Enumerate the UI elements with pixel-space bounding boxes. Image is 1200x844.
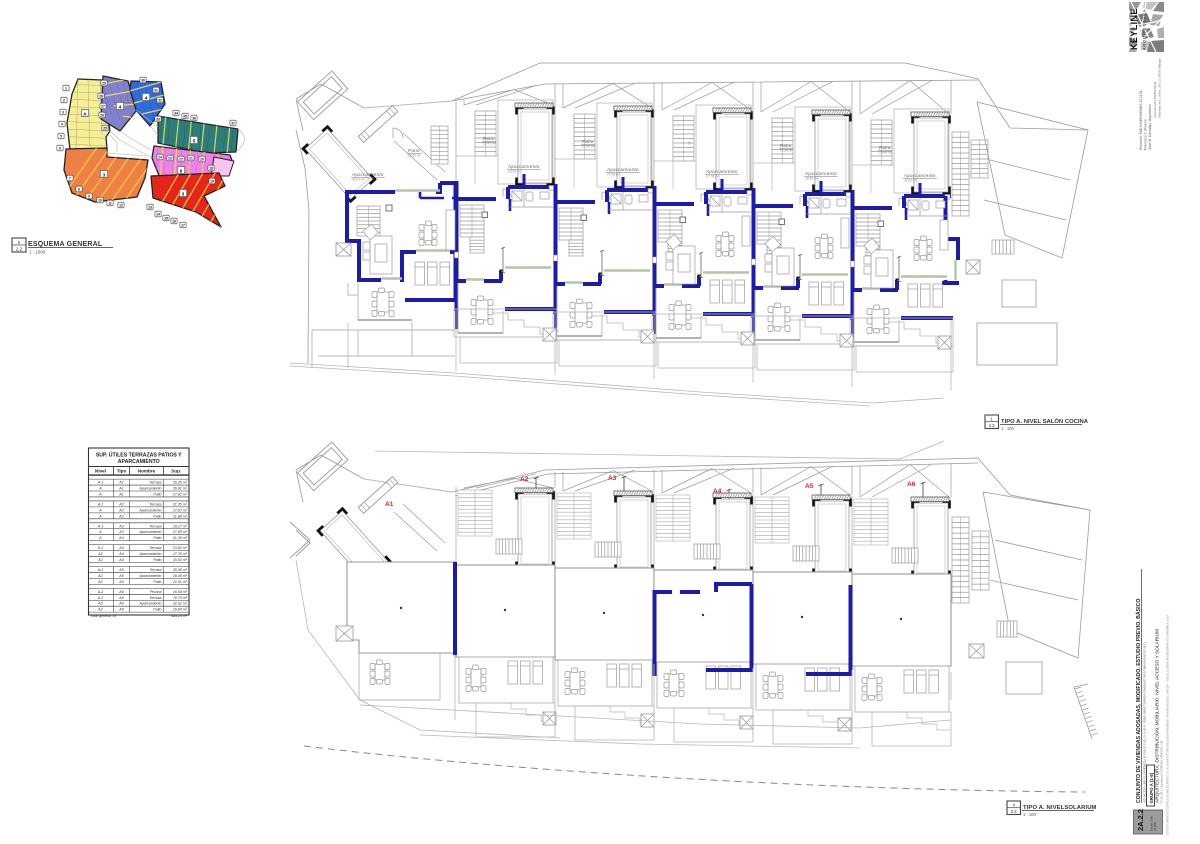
svg-text:18.48 m²: 18.48 m²	[805, 177, 819, 181]
svg-text:Sup.: Sup.	[171, 469, 181, 474]
svg-text:A4: A4	[118, 558, 123, 562]
svg-text:KEYLINE: KEYLINE	[1129, 8, 1139, 50]
svg-text:22: 22	[179, 158, 183, 162]
svg-text:17: 17	[181, 224, 185, 228]
svg-text:A6: A6	[118, 608, 123, 612]
svg-text:ESTE DOCUMENTO ES COPIA DEL PL: ESTE DOCUMENTO ES COPIA DEL PLANO DE PRO…	[1167, 614, 1170, 835]
svg-text:Patio: Patio	[879, 145, 891, 150]
svg-text:Patio: Patio	[153, 536, 161, 540]
svg-text:23: 23	[168, 157, 172, 161]
svg-text:Aparcamiento: Aparcamiento	[138, 574, 161, 578]
svg-text:30: 30	[141, 79, 145, 83]
svg-text:A5: A5	[118, 568, 123, 572]
svg-text:A1 (A3): A1 (A3)	[1153, 822, 1157, 831]
svg-text:22,01 m²: 22,01 m²	[172, 580, 188, 584]
svg-text:5: 5	[60, 135, 62, 139]
svg-text:Piscina: Piscina	[150, 590, 162, 594]
svg-text:Tipo: Tipo	[117, 469, 127, 474]
svg-text:Alameda de C. Adón, 29 1-2 290: Alameda de C. Adón, 29 1-2 29005 Málaga	[1158, 58, 1162, 118]
svg-text:21: 21	[189, 157, 193, 161]
svg-text:17.92 m²: 17.92 m²	[408, 154, 422, 158]
svg-text:33: 33	[156, 118, 160, 122]
svg-text:José M. Cantalejo. Arquitectos: José M. Cantalejo. Arquitectos	[1148, 104, 1152, 150]
svg-text:21,88 m²: 21,88 m²	[172, 514, 188, 518]
svg-text:A: A	[98, 530, 102, 534]
svg-text:ARQUITECTURA. DISTRIBUCIÓN. MO: ARQUITECTURA. DISTRIBUCIÓN. MOBILIARIO. …	[1154, 629, 1161, 803]
svg-text:2: 2	[63, 99, 65, 103]
svg-text:TIPO A. NIVEL SALÓN COCINA: TIPO A. NIVEL SALÓN COCINA	[1001, 417, 1089, 425]
svg-text:2.2: 2.2	[16, 247, 23, 252]
svg-text:Aparcamiento: Aparcamiento	[138, 602, 161, 606]
svg-text:A-2: A-2	[97, 596, 104, 600]
svg-text:2A.2.2: 2A.2.2	[1136, 809, 1145, 831]
svg-text:3: 3	[103, 172, 106, 178]
svg-text:29: 29	[102, 82, 106, 86]
svg-text:32: 32	[158, 99, 162, 103]
svg-text:21.86 m²: 21.86 m²	[779, 149, 794, 153]
svg-text:35,35 m²: 35,35 m²	[173, 481, 188, 485]
svg-text:16: 16	[172, 220, 176, 224]
svg-text:A2: A2	[118, 502, 123, 506]
svg-text:Terraza: Terraza	[149, 596, 161, 600]
svg-text:2.2: 2.2	[989, 423, 996, 428]
svg-text:P.T.SE.188.1 1 Reproducido FOT: P.T.SE.188.1 1 Reproducido FOTOREDUC ADM…	[1161, 740, 1164, 803]
svg-text:A3: A3	[118, 530, 123, 534]
svg-text:28: 28	[99, 95, 103, 99]
svg-text:14: 14	[156, 213, 160, 217]
svg-text:Nombre: Nombre	[138, 469, 156, 474]
svg-text:7: 7	[69, 177, 71, 181]
svg-text:40.91 m²: 40.91 m²	[352, 178, 366, 182]
svg-text:A6: A6	[907, 481, 916, 488]
svg-text:A-1: A-1	[97, 524, 104, 528]
svg-text:A2: A2	[97, 602, 102, 606]
svg-text:A1: A1	[118, 492, 123, 496]
svg-text:17,85 m²: 17,85 m²	[173, 530, 188, 534]
svg-text:Aparcamiento: Aparcamiento	[606, 167, 639, 172]
svg-text:A5: A5	[805, 483, 814, 490]
svg-text:A5: A5	[118, 580, 123, 584]
svg-text:Aparcamiento: Aparcamiento	[138, 530, 161, 534]
svg-text:A6: A6	[118, 590, 123, 594]
svg-text:Terraza: Terraza	[149, 568, 161, 572]
svg-text:34: 34	[174, 112, 178, 116]
svg-text:Total general 19: Total general 19	[91, 614, 117, 618]
svg-text:16,59 m²: 16,59 m²	[173, 590, 188, 594]
svg-text:A3: A3	[118, 524, 123, 528]
svg-text:21,35 m²: 21,35 m²	[172, 536, 188, 540]
svg-text:1 : 100: 1 : 100	[1001, 426, 1014, 431]
svg-text:A-2: A-2	[97, 568, 104, 572]
svg-text:Patio: Patio	[153, 608, 161, 612]
svg-text:GRUPO A (1-6): GRUPO A (1-6)	[1149, 772, 1154, 803]
svg-text:Aparcamiento: Aparcamiento	[705, 169, 738, 174]
svg-text:Aparcamiento: Aparcamiento	[804, 171, 837, 176]
svg-text:Escala 1:100: Escala 1:100	[1150, 815, 1154, 831]
svg-text:76,70 m²: 76,70 m²	[173, 596, 188, 600]
svg-text:ESQUEMA GENERAL: ESQUEMA GENERAL	[28, 241, 103, 248]
svg-text:8: 8	[78, 188, 80, 192]
svg-text:2.2: 2.2	[1011, 809, 1018, 814]
svg-text:ARQUITECTURA: ARQUITECTURA	[1143, 8, 1147, 50]
svg-text:4: 4	[119, 104, 122, 110]
svg-text:A: A	[98, 514, 102, 518]
svg-text:Festival 128 (29651/2003): Festival 128 (29651/2003)	[1153, 82, 1157, 118]
svg-text:A-1: A-1	[97, 481, 104, 485]
svg-text:26: 26	[100, 114, 104, 118]
svg-text:A1: A1	[118, 481, 123, 485]
svg-text:Patio: Patio	[153, 580, 161, 584]
svg-text:A2: A2	[97, 552, 102, 556]
svg-text:Aparcamiento: Aparcamiento	[351, 172, 384, 177]
svg-text:36: 36	[192, 117, 196, 121]
svg-text:APARCAMIENTO: APARCAMIENTO	[118, 459, 160, 465]
svg-text:SUP. ÚTILES TERRAZAS PATIOS Y: SUP. ÚTILES TERRAZAS PATIOS Y	[96, 452, 182, 459]
svg-text:17.05 m²: 17.05 m²	[582, 145, 596, 149]
svg-text:Patio: Patio	[153, 514, 161, 518]
svg-text:6: 6	[59, 147, 61, 151]
svg-text:A-1: A-1	[97, 502, 104, 506]
svg-text:A2: A2	[97, 608, 102, 612]
svg-text:1 : 100: 1 : 100	[1023, 812, 1036, 817]
svg-text:3: 3	[182, 191, 185, 197]
svg-text:A2: A2	[97, 580, 102, 584]
svg-text:A3: A3	[608, 475, 617, 482]
svg-text:A2: A2	[97, 558, 102, 562]
svg-text:4: 4	[61, 123, 63, 127]
svg-text:1: 1	[65, 87, 67, 91]
svg-text:Nivel: Nivel	[95, 469, 106, 474]
svg-text:35: 35	[183, 115, 187, 119]
svg-text:32.92 m²: 32.92 m²	[904, 179, 918, 183]
svg-text:Patio: Patio	[153, 492, 161, 496]
svg-text:A1: A1	[385, 501, 394, 508]
svg-text:Patio: Patio	[582, 139, 594, 144]
svg-text:32,92 m²: 32,92 m²	[173, 602, 188, 606]
svg-text:27: 27	[101, 105, 105, 109]
svg-text:24: 24	[158, 156, 162, 160]
svg-text:17,78 m²: 17,78 m²	[173, 552, 188, 556]
svg-text:31: 31	[154, 89, 158, 93]
svg-text:17,92 m²: 17,92 m²	[173, 492, 188, 496]
svg-text:Patio: Patio	[780, 143, 792, 148]
svg-text:19: 19	[210, 180, 214, 184]
svg-text:Aparcamiento: Aparcamiento	[138, 487, 161, 491]
svg-text:9: 9	[88, 195, 90, 199]
svg-text:A: A	[83, 111, 87, 117]
svg-text:A2: A2	[118, 508, 123, 512]
svg-text:A3: A3	[118, 536, 123, 540]
svg-text:10: 10	[98, 199, 102, 203]
svg-text:23,82 m²: 23,82 m²	[172, 546, 188, 550]
svg-text:5: 5	[193, 138, 196, 144]
svg-text:Terraza: Terraza	[149, 481, 161, 485]
svg-text:Francisco J. Moreno: Francisco J. Moreno	[1144, 119, 1148, 150]
svg-text:Promotor: FAD INVERSIONES 2014: Promotor: FAD INVERSIONES 2014 SL	[1139, 90, 1143, 150]
svg-text:37: 37	[231, 122, 235, 126]
svg-text:18,48 m²: 18,48 m²	[173, 574, 188, 578]
svg-text:A6: A6	[118, 602, 123, 606]
svg-text:A2: A2	[520, 476, 529, 483]
svg-text:A: A	[98, 492, 102, 496]
svg-text:12: 12	[119, 204, 123, 208]
svg-text:Patio: Patio	[153, 558, 161, 562]
svg-text:21,35 m²: 21,35 m²	[172, 502, 188, 506]
svg-text:19,84 m²: 19,84 m²	[173, 608, 188, 612]
svg-text:A4: A4	[118, 546, 123, 550]
svg-text:Terraza: Terraza	[149, 502, 161, 506]
svg-text:A4: A4	[118, 552, 123, 556]
svg-text:3: 3	[62, 111, 64, 115]
svg-text:Aparcamiento: Aparcamiento	[138, 508, 161, 512]
svg-text:Patio: Patio	[483, 136, 495, 141]
svg-text:17.65 m²: 17.65 m²	[607, 173, 621, 177]
svg-text:A6: A6	[118, 596, 123, 600]
svg-text:30,91 m²: 30,91 m²	[173, 487, 188, 491]
svg-text:6: 6	[180, 168, 183, 174]
svg-text:A: A	[98, 536, 102, 540]
svg-text:20: 20	[200, 158, 204, 162]
svg-text:25: 25	[103, 127, 107, 131]
svg-text:Terraza: Terraza	[149, 546, 161, 550]
svg-text:A: A	[98, 508, 102, 512]
svg-text:4: 4	[145, 95, 148, 101]
svg-text:13: 13	[148, 206, 152, 210]
svg-text:17.78 m²: 17.78 m²	[706, 175, 720, 179]
svg-text:A: A	[98, 487, 102, 491]
svg-text:25,38 m²: 25,38 m²	[172, 568, 188, 572]
svg-text:A-2: A-2	[97, 546, 104, 550]
svg-text:A2: A2	[97, 574, 102, 578]
svg-text:CONJUNTO DE VIVIENDAS ADOSADAS: CONJUNTO DE VIVIENDAS ADOSADAS, MODIFICA…	[1135, 599, 1142, 803]
svg-text:10,82 m²: 10,82 m²	[173, 558, 188, 562]
svg-text:SITUACIÓN: URB EL PEÑONCILLO C: SITUACIÓN: URB EL PEÑONCILLO CALLE FUJI …	[1142, 642, 1147, 803]
svg-text:A-2: A-2	[97, 590, 104, 594]
svg-text:11: 11	[108, 202, 112, 206]
svg-text:Aparcamiento: Aparcamiento	[138, 552, 161, 556]
svg-text:464,24 m²: 464,24 m²	[171, 614, 188, 618]
svg-text:A1: A1	[118, 487, 123, 491]
svg-text:25.45 m²: 25.45 m²	[482, 142, 497, 146]
svg-text:15: 15	[164, 217, 168, 221]
svg-text:Aparcamiento: Aparcamiento	[507, 164, 540, 169]
svg-text:Terraza: Terraza	[149, 524, 161, 528]
svg-text:19.59 m²: 19.59 m²	[508, 170, 522, 174]
svg-text:17,97 m²: 17,97 m²	[173, 508, 188, 512]
svg-text:1 : 1000: 1 : 1000	[29, 250, 46, 255]
svg-text:Aparcamiento: Aparcamiento	[903, 173, 936, 178]
svg-text:A2: A2	[118, 514, 123, 518]
svg-text:18: 18	[209, 167, 213, 171]
svg-text:Patio: Patio	[408, 148, 420, 153]
svg-text:19,27 m²: 19,27 m²	[173, 524, 188, 528]
svg-text:19.84 m²: 19.84 m²	[879, 151, 893, 155]
svg-text:A5: A5	[118, 574, 123, 578]
